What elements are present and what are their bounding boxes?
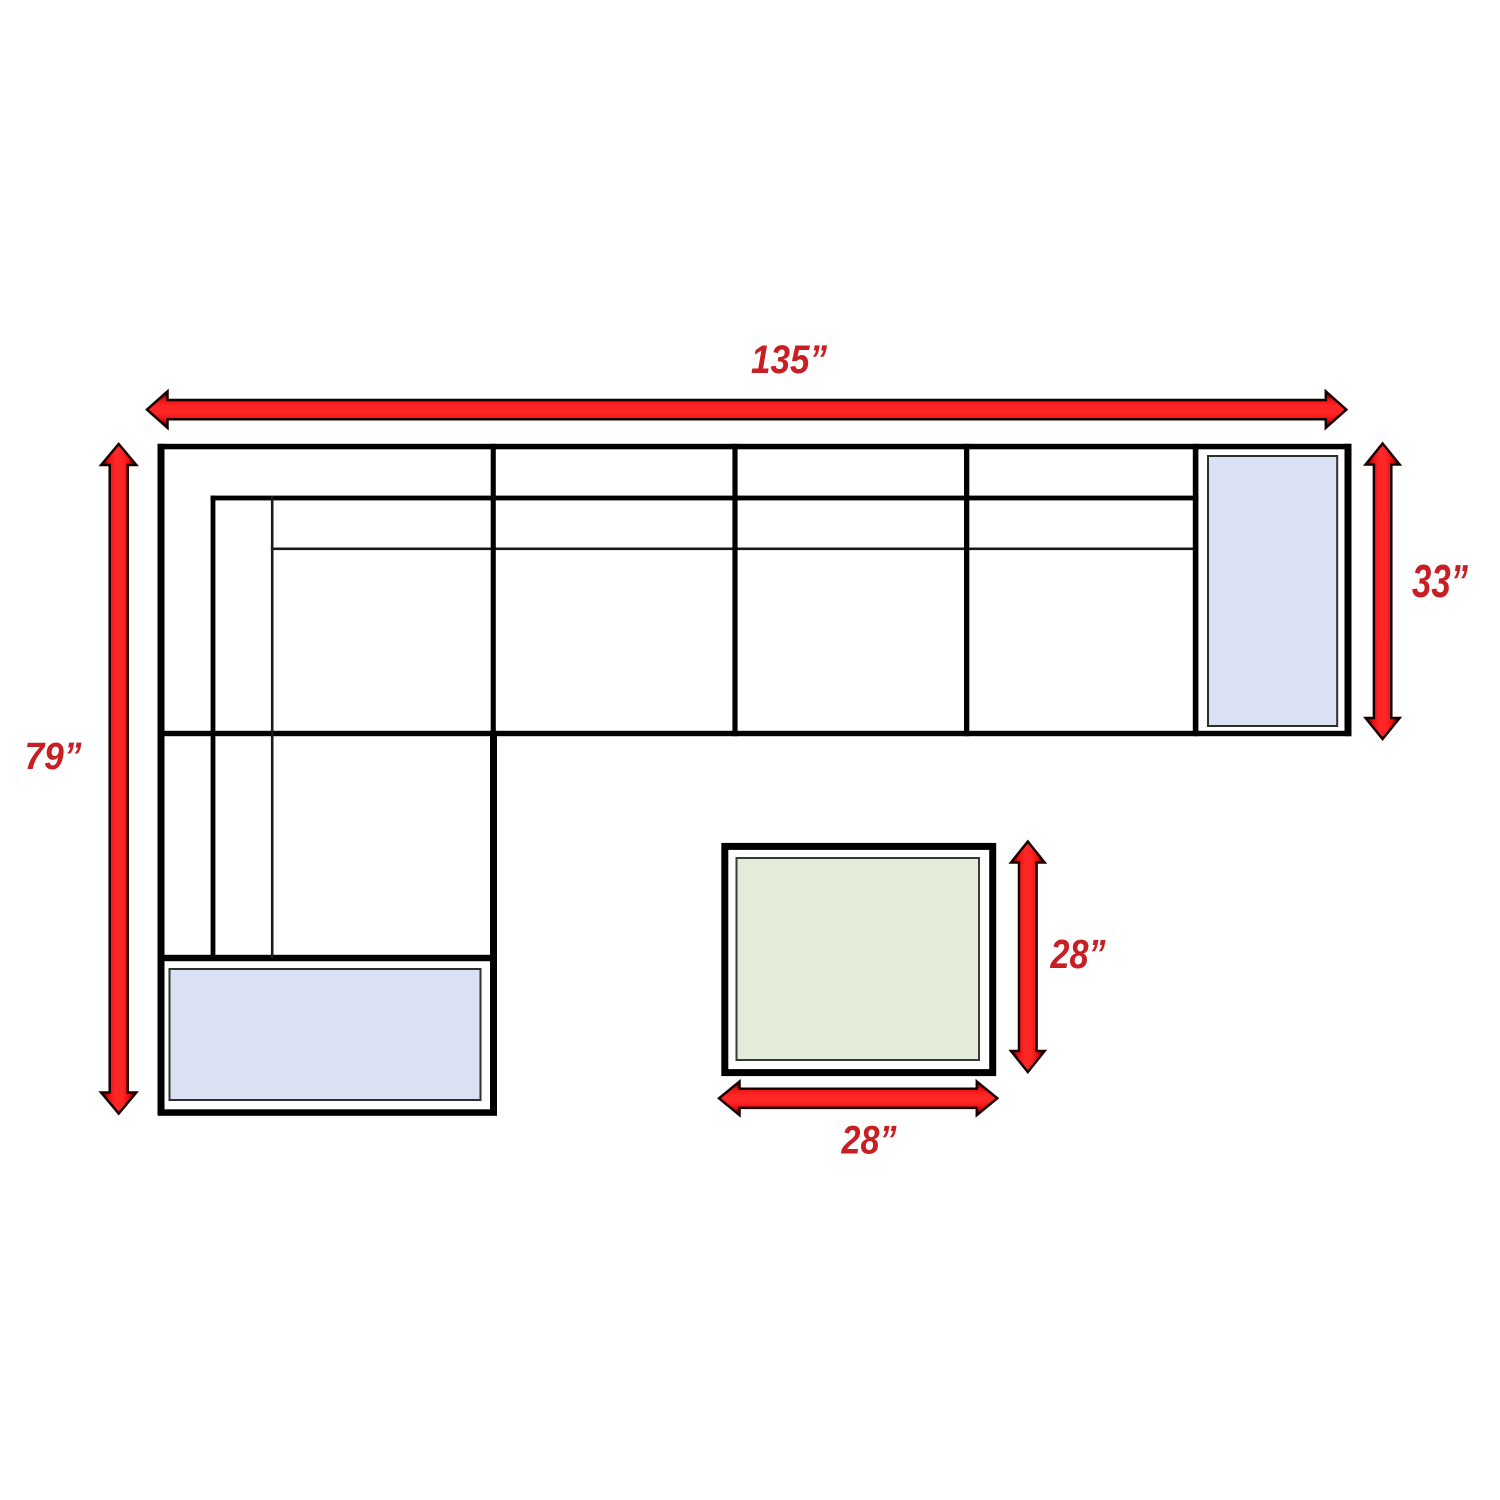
svg-text:79”: 79” [25, 736, 82, 778]
svg-text:28”: 28” [841, 1119, 897, 1163]
svg-text:135”: 135” [751, 338, 827, 382]
svg-text:33”: 33” [1412, 555, 1468, 607]
svg-text:28”: 28” [1050, 931, 1106, 977]
